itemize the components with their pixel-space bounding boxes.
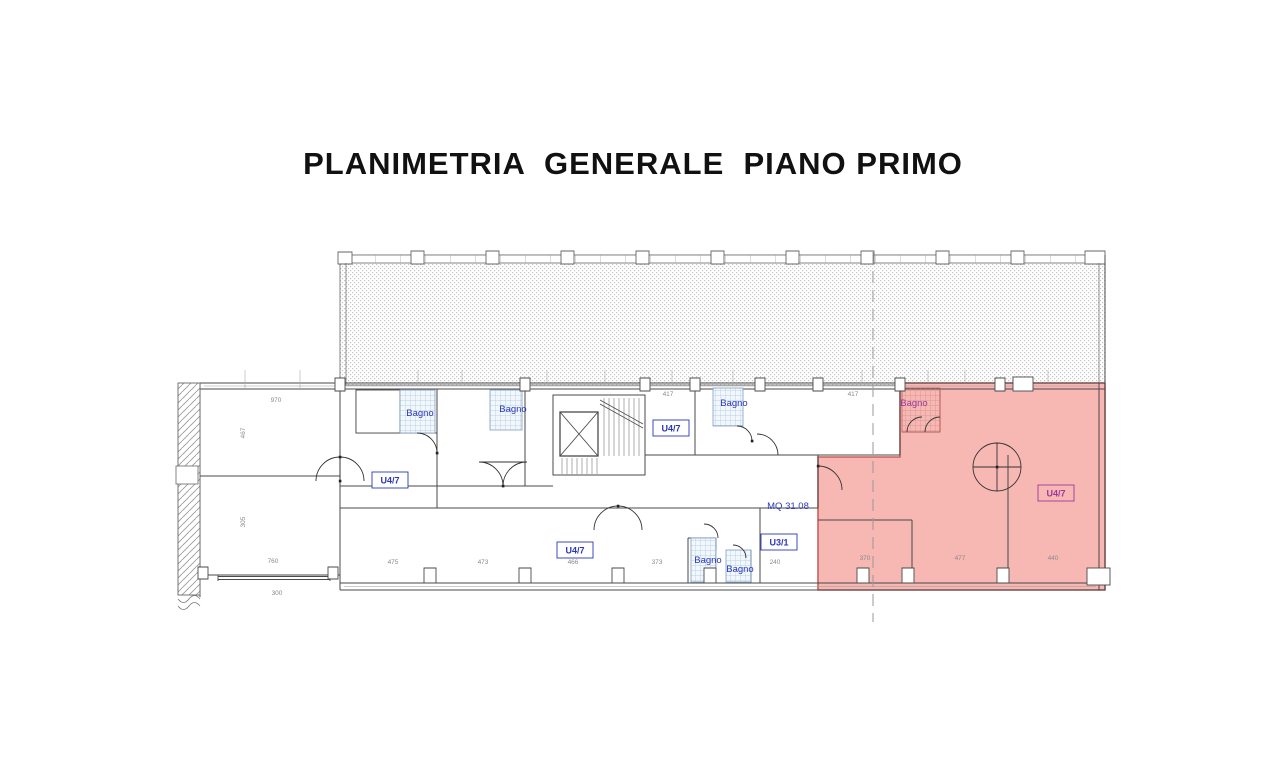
unit-label-u47: U4/7 bbox=[1046, 489, 1065, 499]
dimension-text: 305 bbox=[240, 516, 247, 527]
dimension-text: 300 bbox=[272, 590, 283, 597]
dimension-text: 970 bbox=[271, 397, 282, 404]
dimension-text: 417 bbox=[848, 391, 859, 398]
page-title: PLANIMETRIA GENERALE PIANO PRIMO bbox=[303, 146, 963, 181]
unit-label-u47: U4/7 bbox=[565, 546, 584, 556]
bottom-left-window bbox=[218, 575, 330, 581]
dimension-text: 473 bbox=[478, 559, 489, 566]
dimension-text: 370 bbox=[860, 555, 871, 562]
left-wall-opening bbox=[176, 466, 198, 484]
room-label-bagno: Bagno bbox=[406, 408, 433, 419]
left-wall-hatch bbox=[178, 383, 200, 595]
unit-label-u47: U4/7 bbox=[380, 476, 399, 486]
unit-label-u47: U4/7 bbox=[661, 424, 680, 434]
dimension-text: 760 bbox=[268, 558, 279, 565]
dimension-text: 373 bbox=[652, 559, 663, 566]
room-label-bagno: Bagno bbox=[694, 555, 721, 566]
terrace-door-opening bbox=[1013, 377, 1033, 391]
dimension-text: 440 bbox=[1048, 555, 1059, 562]
wall-break-symbol bbox=[178, 596, 200, 610]
room-label-bagno: Bagno bbox=[720, 398, 747, 409]
left-boundary-wall bbox=[176, 383, 200, 610]
stair-core bbox=[553, 395, 645, 475]
unit-label-u31: U3/1 bbox=[769, 538, 788, 548]
dimension-text: 417 bbox=[663, 391, 674, 398]
dimension-text: 467 bbox=[240, 427, 247, 438]
closet bbox=[356, 390, 400, 433]
area-label-mq: MQ 31.08 bbox=[767, 501, 809, 512]
corner-opening bbox=[1087, 568, 1110, 585]
dimension-text: 475 bbox=[388, 559, 399, 566]
terrace-hatch bbox=[340, 255, 1105, 385]
dimension-text: 477 bbox=[955, 555, 966, 562]
bathroom-tile-highlighted bbox=[902, 388, 940, 432]
dimension-text: 240 bbox=[770, 559, 781, 566]
terrace-area bbox=[338, 251, 1105, 385]
room-label-bagno: Bagno bbox=[726, 564, 753, 575]
dimension-text: 466 bbox=[568, 559, 579, 566]
floor-plan-drawing: PLANIMETRIA GENERALE PIANO PRIMO bbox=[0, 0, 1280, 784]
room-label-bagno: Bagno bbox=[499, 404, 526, 415]
room-label-bagno: Bagno bbox=[900, 398, 927, 409]
